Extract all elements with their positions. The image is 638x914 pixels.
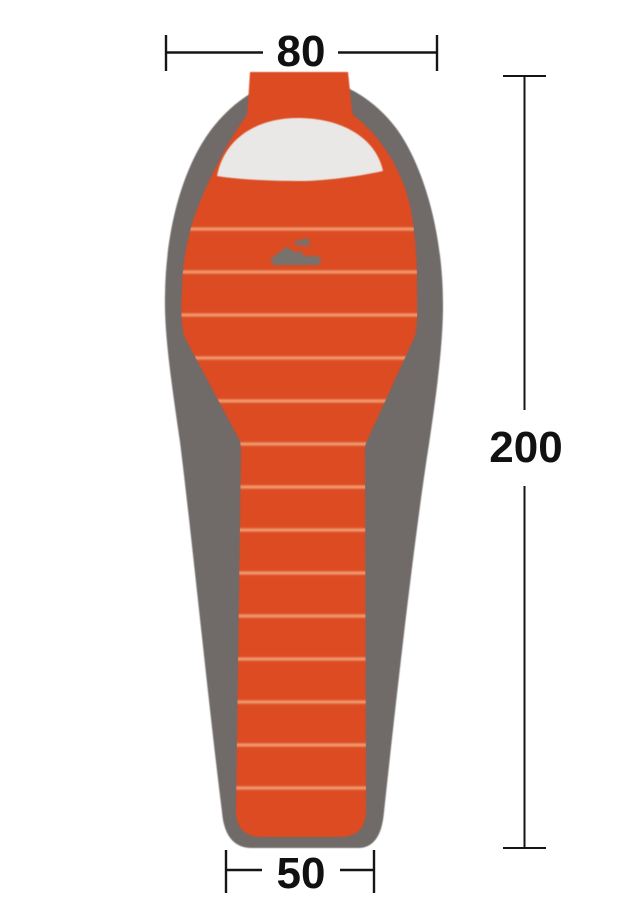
svg-text:80: 80 (277, 27, 326, 76)
svg-text:50: 50 (277, 849, 326, 898)
svg-text:200: 200 (489, 423, 562, 472)
